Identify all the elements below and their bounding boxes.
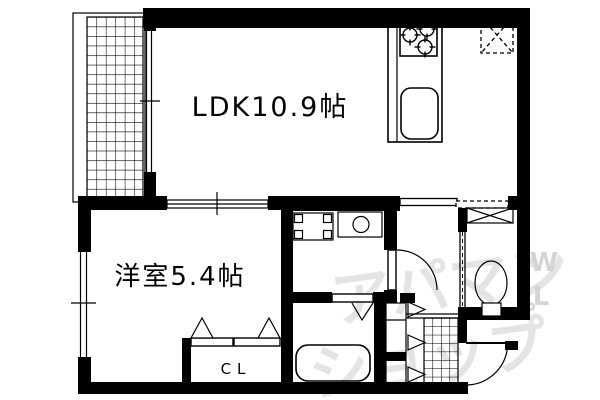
closet-label: CL	[221, 360, 252, 378]
watermark-maru-mark: ゜	[526, 300, 560, 340]
floor-plan-canvas: アパマン ショップ W L ゜	[0, 0, 600, 400]
bedroom-label: 洋室5.4帖	[114, 262, 245, 292]
watermark-letter-w: W	[530, 248, 559, 278]
balcony-hatch-icon	[87, 17, 143, 198]
floor-plan: アパマン ショップ W L ゜	[0, 0, 600, 400]
ldk-label: LDK10.9帖	[192, 92, 349, 123]
